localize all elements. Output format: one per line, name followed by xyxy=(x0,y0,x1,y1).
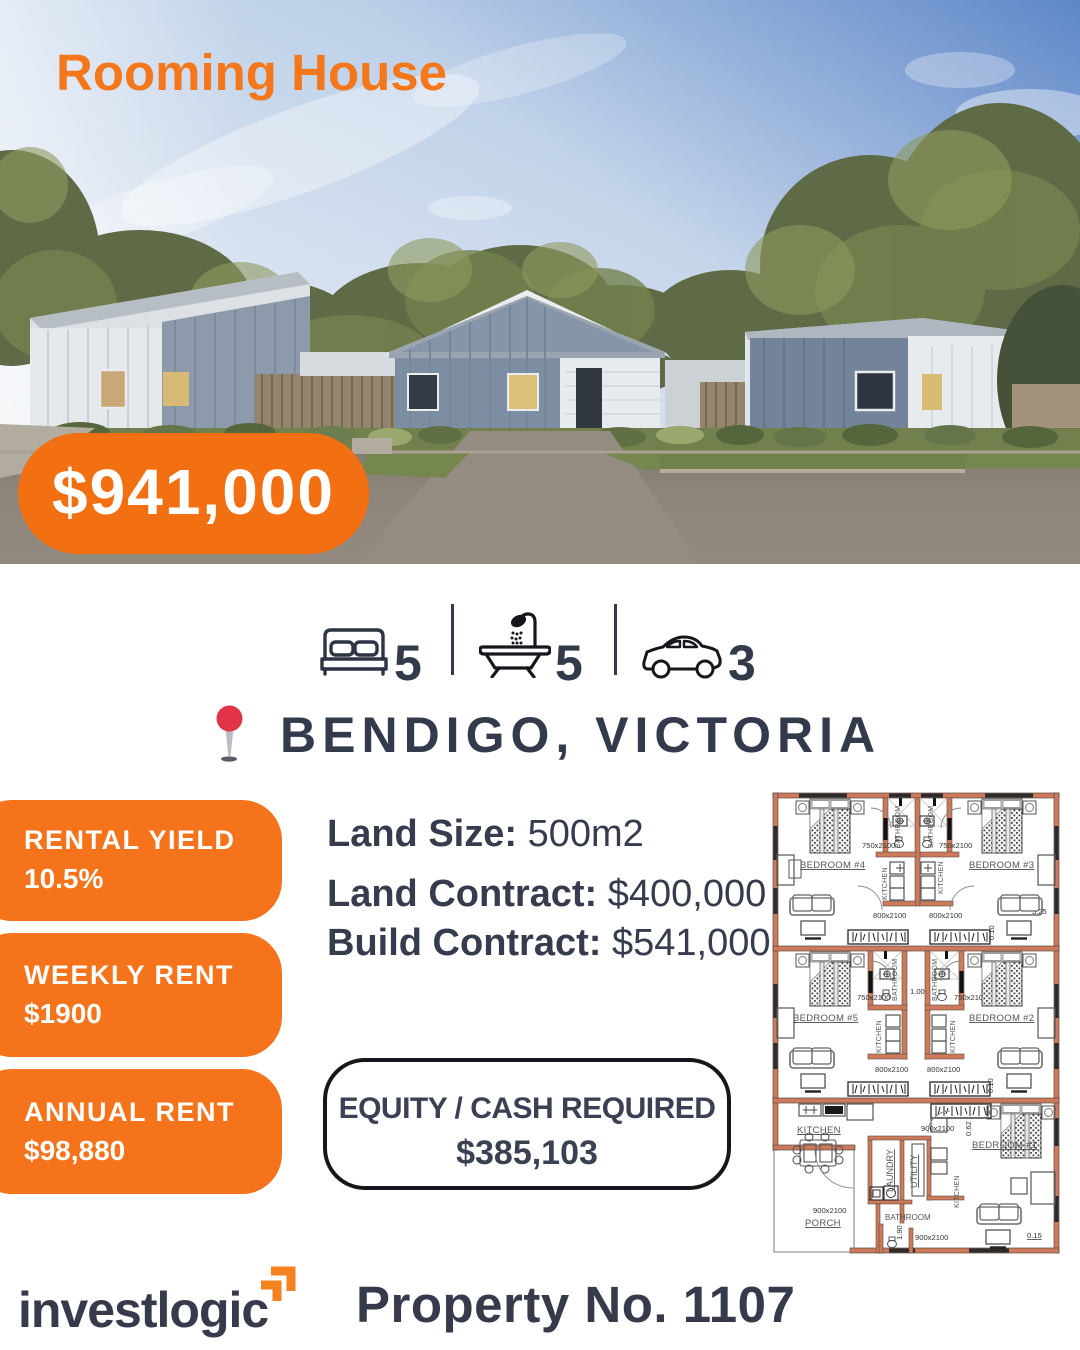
svg-text:0.10: 0.10 xyxy=(987,925,996,940)
svg-text:LAUNDRY: LAUNDRY xyxy=(885,1149,895,1192)
svg-text:KITCHEN: KITCHEN xyxy=(876,1020,883,1053)
svg-text:KITCHEN: KITCHEN xyxy=(882,867,889,900)
svg-text:900x2100: 900x2100 xyxy=(915,1233,948,1242)
svg-text:750x2100: 750x2100 xyxy=(862,841,895,850)
svg-text:800x2100: 800x2100 xyxy=(873,911,906,920)
svg-text:750x2100: 750x2100 xyxy=(857,993,890,1002)
svg-text:900x2100: 900x2100 xyxy=(813,1206,846,1215)
svg-text:BEDROOM #3: BEDROOM #3 xyxy=(969,860,1034,871)
svg-text:1.00: 1.00 xyxy=(910,987,925,996)
svg-text:KITCHEN: KITCHEN xyxy=(938,861,945,894)
svg-text:BATHROOM: BATHROOM xyxy=(928,806,935,848)
svg-text:BATHROOM: BATHROOM xyxy=(885,1213,931,1222)
svg-text:BEDROOM #5: BEDROOM #5 xyxy=(793,1013,858,1024)
svg-text:0.62: 0.62 xyxy=(964,1121,973,1136)
svg-text:BATHROOM: BATHROOM xyxy=(932,959,939,1001)
svg-text:900x2100: 900x2100 xyxy=(921,1124,954,1133)
svg-text:BATHROOM: BATHROOM xyxy=(892,959,899,1001)
svg-text:BEDROOM #1: BEDROOM #1 xyxy=(972,1140,1037,1151)
svg-text:800x2100: 800x2100 xyxy=(875,1065,908,1074)
svg-text:1.90: 1.90 xyxy=(895,1225,904,1240)
svg-text:BEDROOM #2: BEDROOM #2 xyxy=(969,1013,1034,1024)
svg-text:0.15: 0.15 xyxy=(1027,1231,1042,1240)
svg-text:BATHROOM: BATHROOM xyxy=(895,806,902,848)
svg-text:KITCHEN: KITCHEN xyxy=(954,1175,961,1208)
svg-text:750x2100: 750x2100 xyxy=(939,841,972,850)
svg-text:0.10: 0.10 xyxy=(986,1078,995,1093)
svg-text:800x2100: 800x2100 xyxy=(927,1065,960,1074)
svg-text:800x2100: 800x2100 xyxy=(929,911,962,920)
svg-text:UTILITY: UTILITY xyxy=(909,1154,919,1188)
svg-text:KITCHEN: KITCHEN xyxy=(797,1125,841,1136)
svg-text:BEDROOM #4: BEDROOM #4 xyxy=(800,860,865,871)
svg-text:KITCHEN: KITCHEN xyxy=(950,1020,957,1053)
svg-text:PORCH: PORCH xyxy=(805,1218,841,1229)
